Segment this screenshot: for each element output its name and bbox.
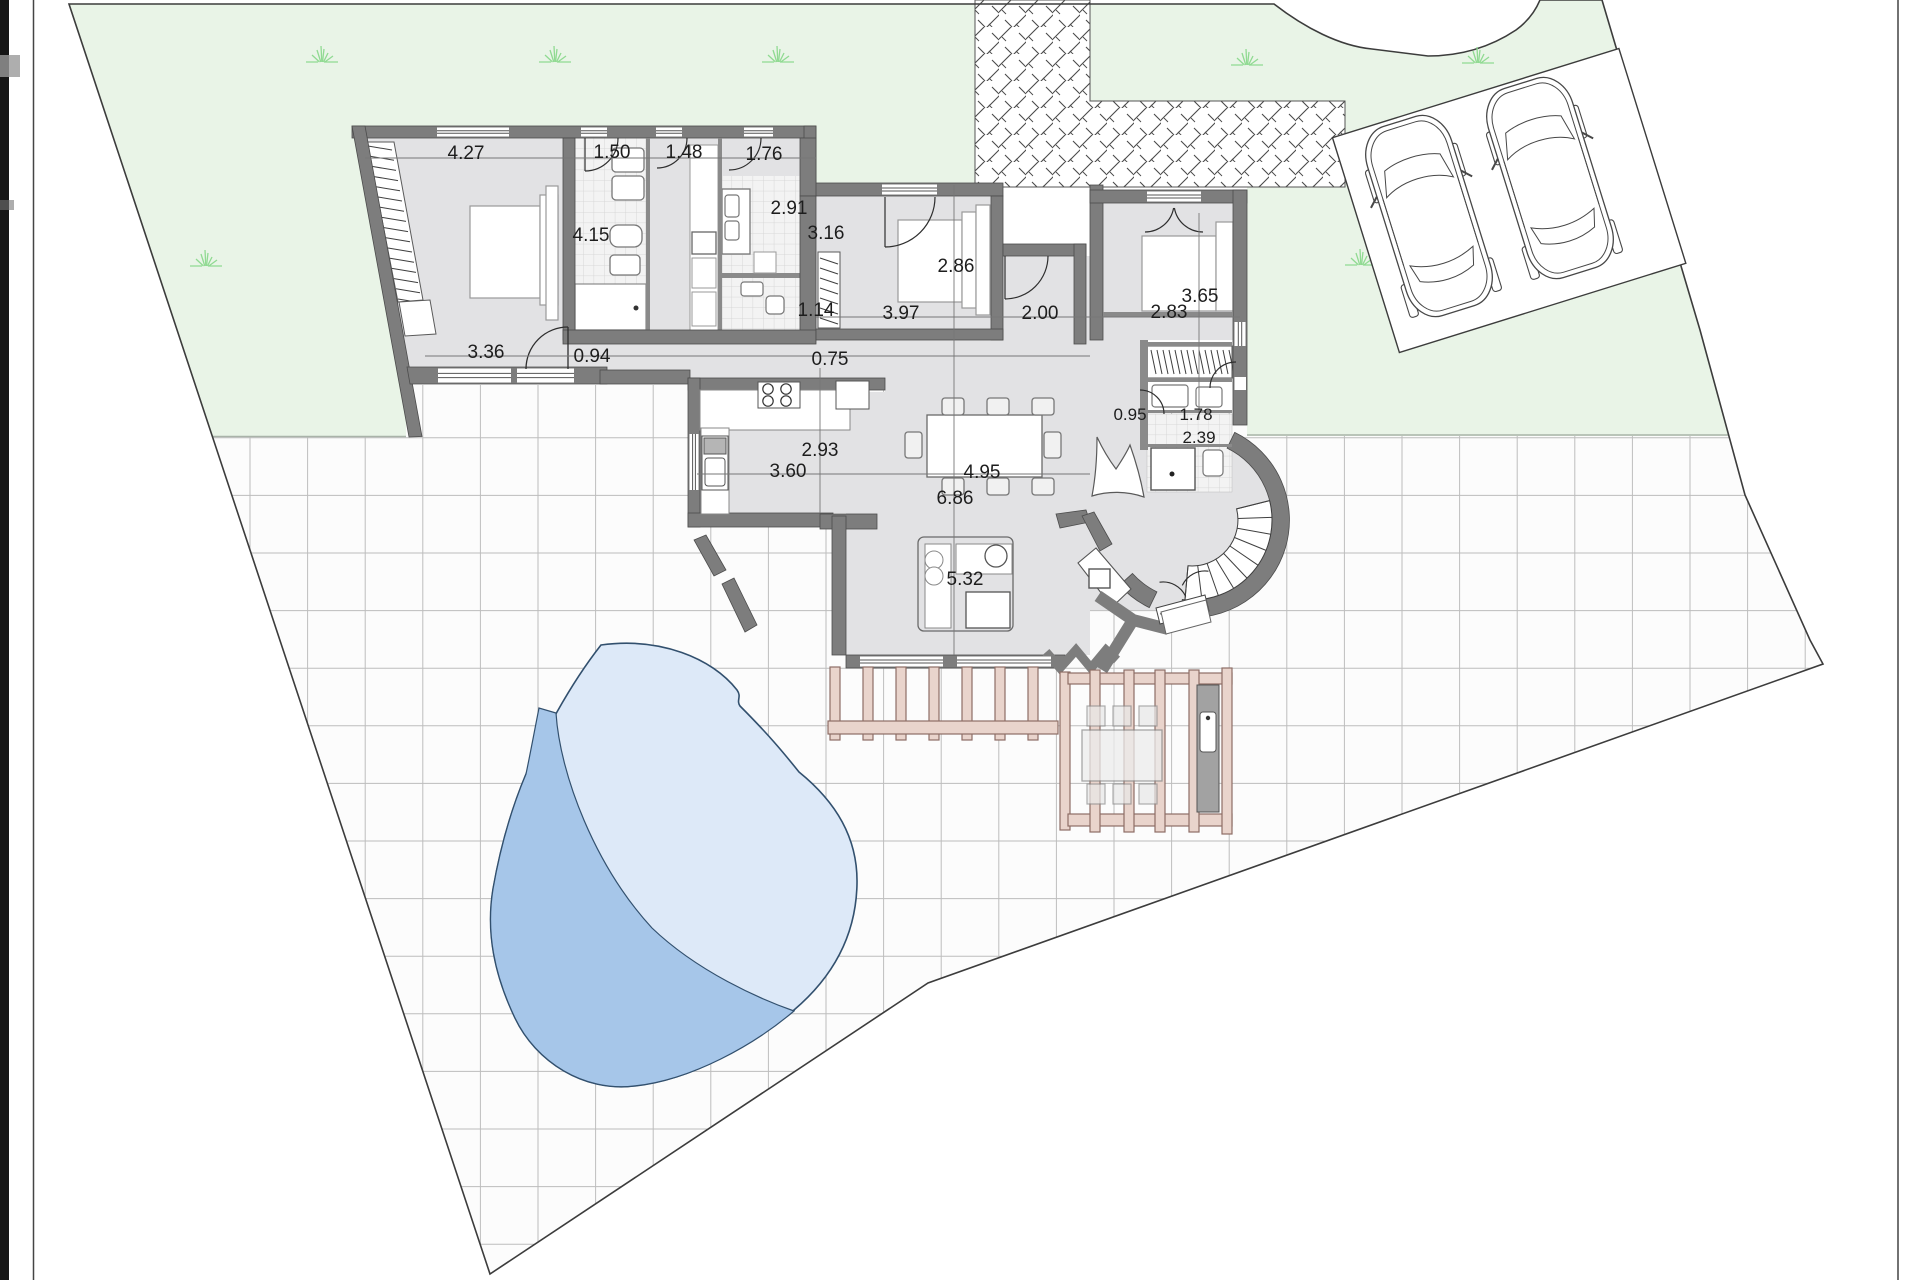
- svg-text:4.27: 4.27: [448, 143, 485, 164]
- svg-text:2.91: 2.91: [771, 198, 808, 219]
- svg-text:1.48: 1.48: [666, 142, 703, 163]
- svg-text:1.50: 1.50: [594, 142, 631, 163]
- svg-text:2.86: 2.86: [938, 256, 975, 277]
- svg-text:4.15: 4.15: [573, 225, 610, 246]
- svg-text:0.75: 0.75: [812, 349, 849, 370]
- svg-text:3.36: 3.36: [468, 342, 505, 363]
- svg-text:5.32: 5.32: [947, 569, 984, 590]
- svg-text:2.93: 2.93: [802, 440, 839, 461]
- svg-text:1.14: 1.14: [798, 300, 835, 321]
- svg-text:0.95: 0.95: [1113, 405, 1146, 424]
- svg-text:2.39: 2.39: [1182, 428, 1215, 447]
- svg-text:3.97: 3.97: [883, 303, 920, 324]
- svg-text:2.00: 2.00: [1022, 303, 1059, 324]
- svg-text:6.86: 6.86: [937, 488, 974, 509]
- svg-text:0.94: 0.94: [574, 346, 611, 367]
- svg-text:3.60: 3.60: [770, 461, 807, 482]
- svg-text:3.16: 3.16: [808, 223, 845, 244]
- svg-text:2.83: 2.83: [1151, 302, 1188, 323]
- svg-text:1.78: 1.78: [1179, 405, 1212, 424]
- svg-text:1.76: 1.76: [746, 144, 783, 165]
- svg-text:4.95: 4.95: [964, 462, 1001, 483]
